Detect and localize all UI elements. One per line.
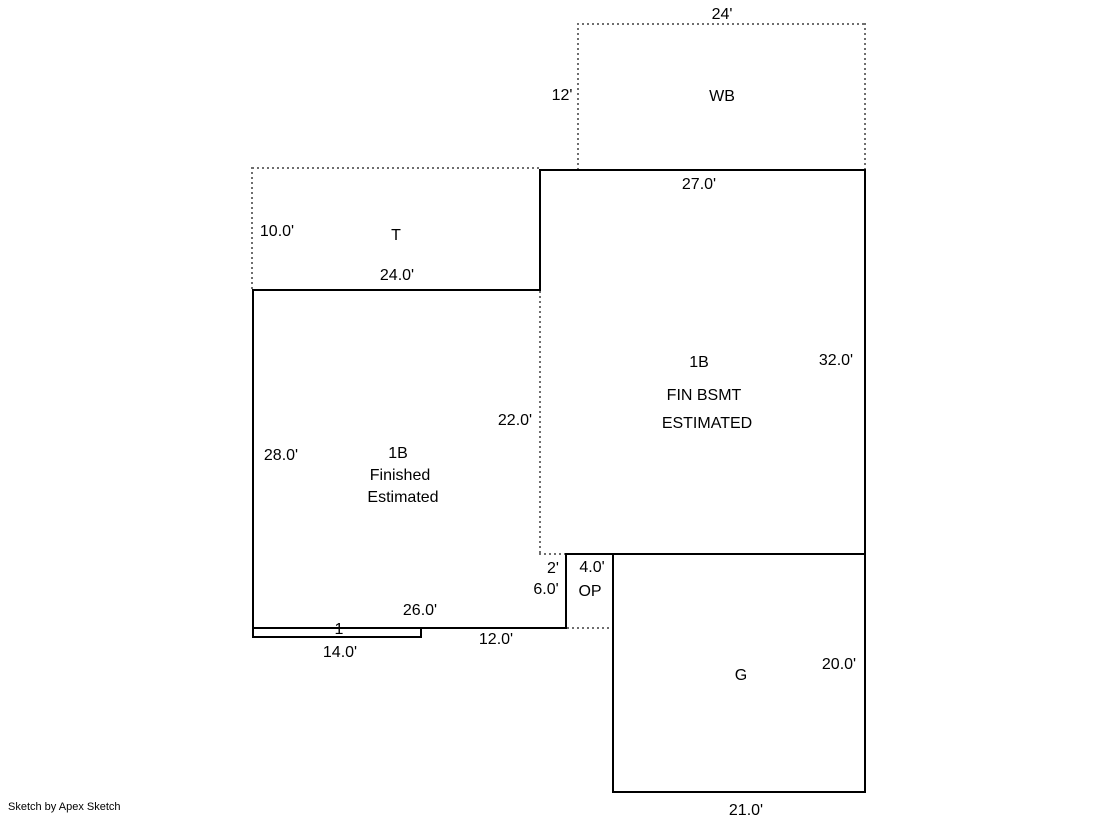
t-top-dotted-line <box>252 167 541 169</box>
garage-bottom-wall <box>612 791 866 793</box>
finished-right-dimension: 22.0' <box>498 413 532 429</box>
finished-bottom-right-dimension: 12.0' <box>479 632 513 648</box>
wb-area-label: WB <box>709 89 735 105</box>
bsmt-width-dimension: 27.0' <box>682 177 716 193</box>
bsmt-area-label-line2: FIN BSMT <box>667 388 742 404</box>
finished-area-label-line3: Estimated <box>367 490 438 506</box>
wb-right-dotted-line <box>864 23 866 169</box>
finished-left-wall <box>252 289 254 629</box>
t-left-dotted-line <box>251 167 253 291</box>
garage-height-dimension: 20.0' <box>822 657 856 673</box>
op-bottom-dotted-line <box>567 627 613 629</box>
bsmt-top-wall <box>539 169 866 171</box>
finished-bottom-dimension: 26.0' <box>403 603 437 619</box>
stoop-width-dimension: 14.0' <box>323 645 357 661</box>
op-height-dimension: 6.0' <box>533 582 558 598</box>
jog-dotted-line <box>539 553 565 555</box>
finished-top-wall <box>252 289 541 291</box>
wb-height-dimension: 12' <box>552 88 573 104</box>
op-area-label: OP <box>578 584 601 600</box>
garage-right-wall <box>864 553 866 793</box>
garage-width-dimension: 21.0' <box>729 803 763 819</box>
sketch-credit-text: Sketch by Apex Sketch <box>8 801 121 813</box>
op-left-wall <box>565 553 567 629</box>
t-height-dimension: 10.0' <box>260 224 294 240</box>
bsmt-area-label-line1: 1B <box>689 355 709 371</box>
t-width-dimension: 24.0' <box>380 268 414 284</box>
t-area-label: T <box>391 228 401 244</box>
bsmt-left-upper-wall <box>539 169 541 291</box>
bsmt-bottom-wall <box>565 553 866 555</box>
garage-area-label: G <box>735 668 747 684</box>
bsmt-area-label-line3: ESTIMATED <box>662 416 752 432</box>
jog-dimension: 2' <box>547 561 559 577</box>
garage-left-wall <box>612 553 614 793</box>
wb-left-dotted-line <box>577 23 579 169</box>
bsmt-right-wall <box>864 169 866 555</box>
op-width-dimension: 4.0' <box>579 560 604 576</box>
bsmt-left-lower-dotted-line <box>539 291 541 555</box>
wb-top-dotted-line <box>577 23 866 25</box>
finished-height-dimension: 28.0' <box>264 448 298 464</box>
bsmt-height-dimension: 32.0' <box>819 353 853 369</box>
finished-area-label-line1: 1B <box>388 446 408 462</box>
finished-area-label-line2: Finished <box>370 468 430 484</box>
stoop-height-dimension: 1 <box>335 622 344 638</box>
wb-width-dimension: 24' <box>712 7 733 23</box>
floorplan-canvas: 24' 12' WB 10.0' T 24.0' 27.0' 32.0' 1B … <box>0 0 1119 821</box>
